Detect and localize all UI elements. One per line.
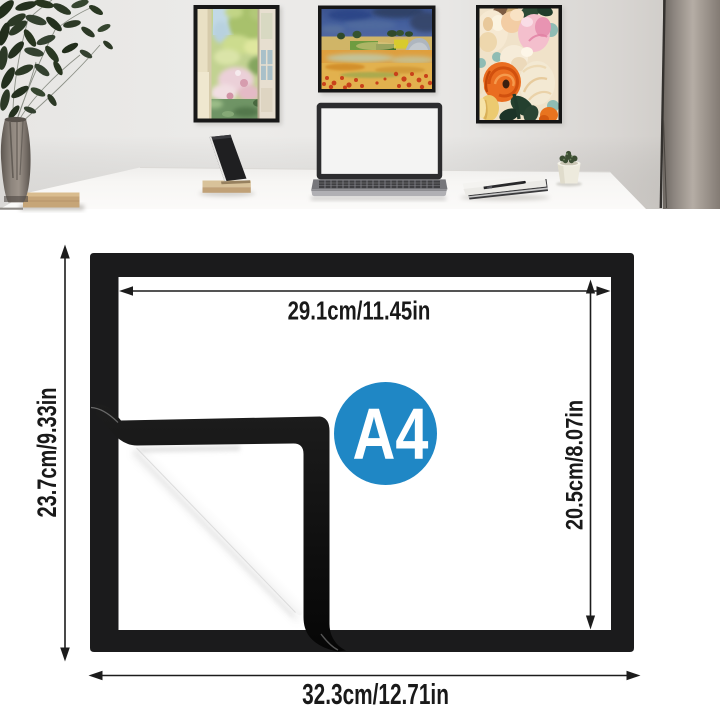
svg-text:23.7cm/9.33in: 23.7cm/9.33in [32, 388, 63, 518]
svg-text:29.1cm/11.45in: 29.1cm/11.45in [288, 296, 431, 325]
svg-text:A4: A4 [353, 393, 429, 474]
svg-text:20.5cm/8.07in: 20.5cm/8.07in [561, 400, 588, 530]
svg-text:32.3cm/12.71in: 32.3cm/12.71in [302, 679, 449, 711]
